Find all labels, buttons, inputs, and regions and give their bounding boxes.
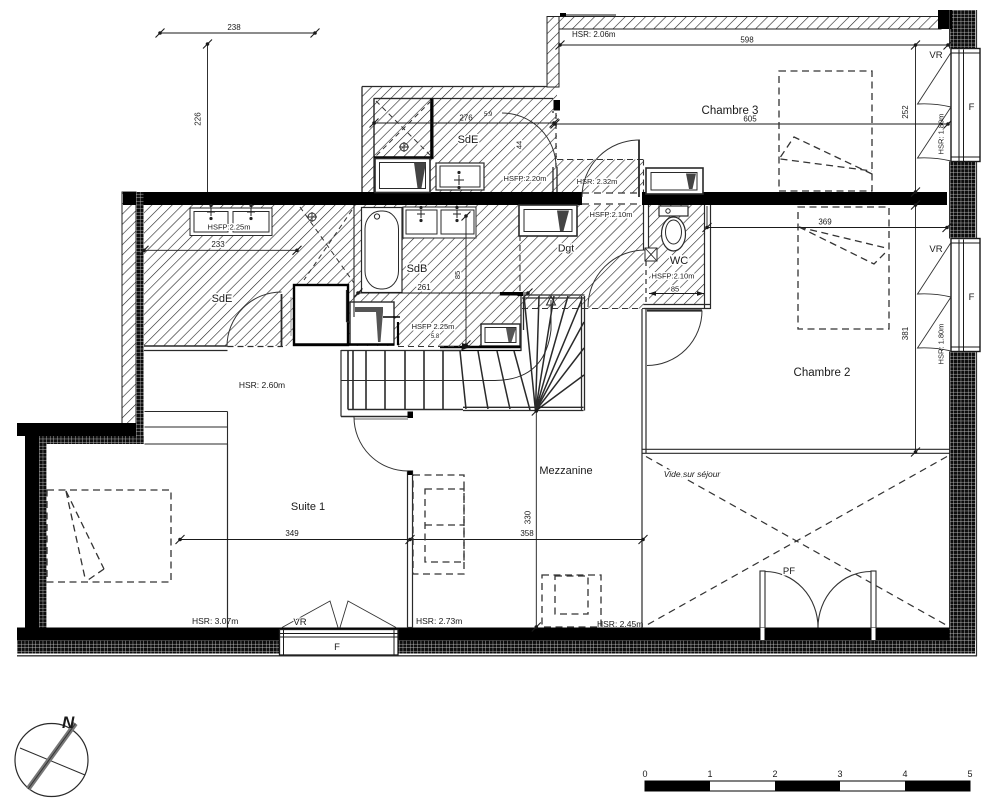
svg-text:HSR: 2.06m: HSR: 2.06m xyxy=(572,30,616,39)
svg-text:Vide sur séjour: Vide sur séjour xyxy=(664,469,722,479)
svg-text:605: 605 xyxy=(743,115,757,124)
svg-text:598: 598 xyxy=(740,36,754,45)
svg-text:HSR: 3.07m: HSR: 3.07m xyxy=(192,616,238,626)
svg-text:SdE: SdE xyxy=(212,293,233,305)
svg-text:5.8: 5.8 xyxy=(431,334,440,340)
svg-text:44: 44 xyxy=(515,141,524,149)
svg-text:Chambre 2: Chambre 2 xyxy=(794,367,851,379)
svg-text:HSFP:2.10m: HSFP:2.10m xyxy=(590,210,633,219)
svg-text:F: F xyxy=(969,292,975,303)
svg-text:HSFP 2.25m: HSFP 2.25m xyxy=(412,322,455,331)
svg-text:2: 2 xyxy=(772,769,777,779)
svg-text:HSFP:2.25m: HSFP:2.25m xyxy=(208,223,251,232)
svg-text:381: 381 xyxy=(901,326,910,340)
svg-text:349: 349 xyxy=(285,529,299,538)
svg-text:VR: VR xyxy=(293,617,306,628)
svg-text:Mezzanine: Mezzanine xyxy=(539,465,592,477)
svg-text:HSR: 2.32m: HSR: 2.32m xyxy=(577,177,618,186)
svg-text:VR: VR xyxy=(929,244,942,255)
svg-text:233: 233 xyxy=(211,240,225,249)
svg-text:VR: VR xyxy=(929,50,942,61)
svg-text:Dgt: Dgt xyxy=(558,243,574,255)
svg-text:HSR: 1.80m: HSR: 1.80m xyxy=(937,324,946,365)
svg-text:4: 4 xyxy=(902,769,907,779)
svg-text:F: F xyxy=(969,102,975,113)
svg-text:330: 330 xyxy=(524,510,533,524)
svg-text:N: N xyxy=(62,713,75,732)
svg-text:226: 226 xyxy=(194,112,203,126)
svg-text:HSR: 2.73m: HSR: 2.73m xyxy=(416,616,462,626)
svg-text:HSR: 1.80m: HSR: 1.80m xyxy=(937,114,946,155)
svg-text:3: 3 xyxy=(837,769,842,779)
svg-text:238: 238 xyxy=(227,23,241,32)
svg-text:HSR: 2.45m: HSR: 2.45m xyxy=(597,619,643,629)
svg-text:0: 0 xyxy=(642,769,647,779)
svg-text:PF: PF xyxy=(783,566,795,577)
svg-text:85: 85 xyxy=(671,285,679,294)
svg-text:HSFP:2.20m: HSFP:2.20m xyxy=(504,174,547,183)
svg-text:WC: WC xyxy=(670,255,688,267)
svg-text:276: 276 xyxy=(459,114,473,123)
svg-text:HSR: 2.60m: HSR: 2.60m xyxy=(239,380,285,390)
svg-text:85: 85 xyxy=(453,271,462,279)
svg-text:SdB: SdB xyxy=(407,263,428,275)
svg-text:Suite 1: Suite 1 xyxy=(291,501,325,513)
svg-text:HSFP:2.10m: HSFP:2.10m xyxy=(652,272,695,281)
svg-text:5: 5 xyxy=(967,769,972,779)
svg-text:SdE: SdE xyxy=(458,134,479,146)
svg-text:5.9: 5.9 xyxy=(484,112,493,118)
svg-text:358: 358 xyxy=(520,529,534,538)
svg-text:F: F xyxy=(334,642,340,653)
svg-text:252: 252 xyxy=(901,105,910,119)
svg-text:261: 261 xyxy=(417,283,431,292)
svg-text:369: 369 xyxy=(818,218,832,227)
svg-text:1: 1 xyxy=(707,769,712,779)
